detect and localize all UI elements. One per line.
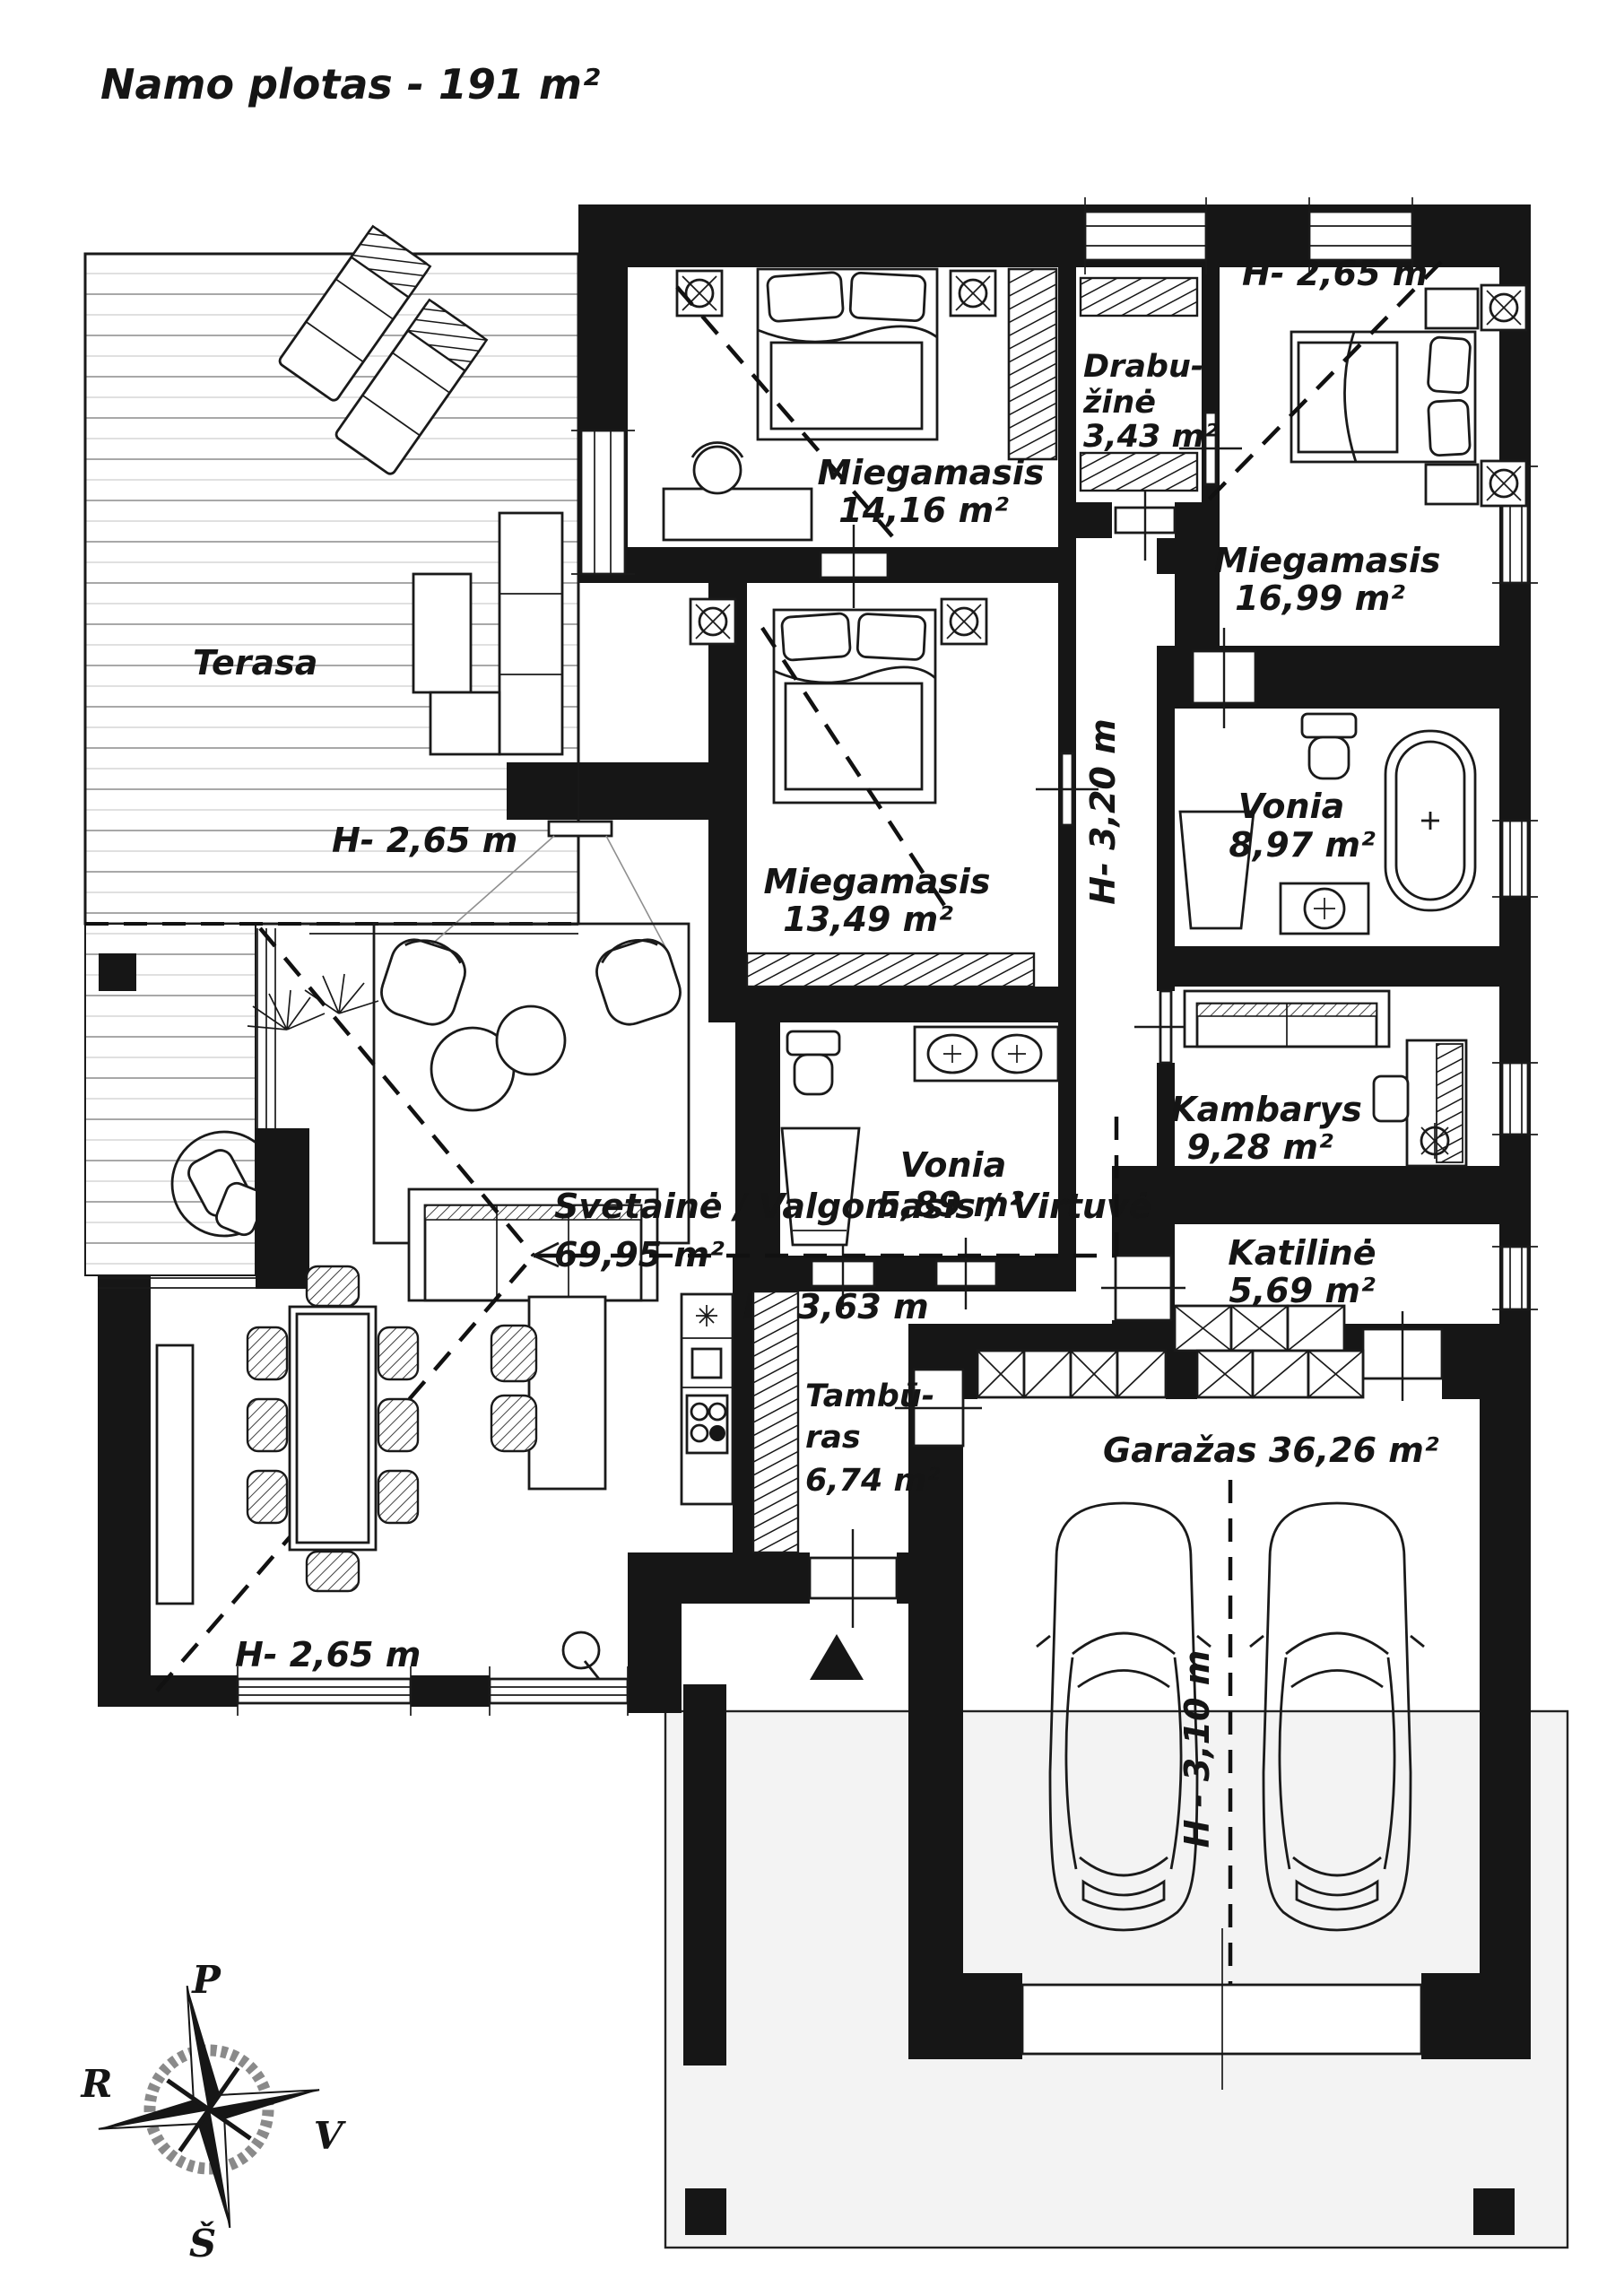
nightstand [1426,465,1478,504]
walk-in-closet: Drabu- žinė 3,43 m² [1081,278,1219,491]
floor-plan-page: { "title": "Namo plotas - 191 m²", "room… [0,0,1624,2296]
room-label: Miegamasis [1214,541,1441,580]
bathroom-big: Vonia 8,97 m² [1180,714,1475,934]
nightstand-lamp [942,599,986,644]
floor-plan: Namo plotas - 191 m² [0,0,1624,2296]
height-label: H- 2,65 m [332,821,517,860]
wardrobe [1009,269,1056,459]
terrace-lamp-post [99,953,136,991]
room-label: Kambarys [1170,1090,1362,1129]
bedroom1: Miegamasis 14,16 m² [664,269,1056,540]
room-label: Miegamasis [818,453,1045,492]
plant [248,974,378,1030]
kambarys: Kambarys 9,28 m² [1170,991,1466,1167]
kitchen-island [529,1297,605,1489]
room-area: 13,49 m² [783,900,953,939]
page-title: Namo plotas - 191 m² [100,60,600,109]
room-label: Drabu- [1083,349,1203,385]
room-area: 8,97 m² [1229,825,1376,865]
compass-north: P [191,1958,221,2002]
nightstand-lamp [690,599,735,644]
coat-closet [753,1291,798,1552]
double-sink [915,1027,1058,1081]
nightstand-lamp [951,271,995,316]
terrace-bench [413,574,471,692]
bathtub [1385,731,1475,910]
kitchen-counter [682,1294,733,1504]
room-area: 14,16 m² [838,491,1009,530]
sideboard [157,1345,193,1604]
closet-rail [1081,453,1197,491]
terrace: Terasa [85,226,578,1275]
room-label-terasa: Terasa [193,643,317,683]
room-label: Garažas 36,26 m² [1103,1431,1439,1470]
double-bed [774,610,935,803]
coffee-table [497,1006,565,1074]
desk [664,442,812,540]
nightstand-lamp [1481,461,1526,506]
room-label: Tambū- [805,1378,934,1414]
sink [1281,883,1368,934]
room-label: žinė [1082,385,1156,421]
room-label: ras [805,1420,861,1456]
compass-west: R [81,2062,113,2106]
sofa [1185,991,1389,1047]
garage-height-label: H - 3,10 m [1177,1650,1217,1848]
toilet [1302,714,1356,778]
door-handle-symbol [563,1632,599,1679]
height-label: H- 2,65 m [1242,254,1428,293]
toilet [787,1031,839,1094]
room-area: 16,99 m² [1235,578,1405,618]
window [571,430,635,574]
kitchen [491,1294,733,1504]
window [1492,1247,1538,1309]
nightstand-lamp [1481,285,1526,330]
desk [1374,1040,1466,1166]
compass-east: V [314,2114,347,2158]
wardrobe-rail [747,953,1034,987]
room-label: Vonia [1238,787,1344,826]
closet-rail [1081,278,1197,316]
armchair [376,931,473,1031]
room-label: Vonia [900,1145,1006,1185]
corridor-height-label: H- 3,20 m [1083,718,1123,904]
compass-rose: P R V Š [77,1958,347,2266]
entrance-arrow [810,1634,864,1680]
room-label: Katilinė [1228,1233,1376,1273]
window [1492,1063,1538,1135]
room-label: Svetainė / Valgomasis / Virtuvė [554,1187,1151,1226]
window [1492,821,1538,897]
window [490,1666,628,1716]
room-area: 9,28 m² [1186,1127,1333,1167]
dining-table [290,1307,376,1550]
room-area: 3,43 m² [1083,419,1219,455]
bedroom3: H- 2,65 m Miegamasis 16,99 m² [1206,254,1526,618]
boiler-equipment [1175,1306,1344,1351]
compass-south: Š [189,2221,216,2266]
height-label: H- 2,65 m [235,1635,421,1674]
room-area: 5,69 m² [1229,1271,1376,1310]
armchair [590,931,687,1031]
room-label: Miegamasis [764,862,991,901]
tv [549,822,612,836]
double-bed [1291,332,1475,462]
nightstand [1426,289,1478,328]
room-area: 6,74 m² [805,1463,941,1499]
